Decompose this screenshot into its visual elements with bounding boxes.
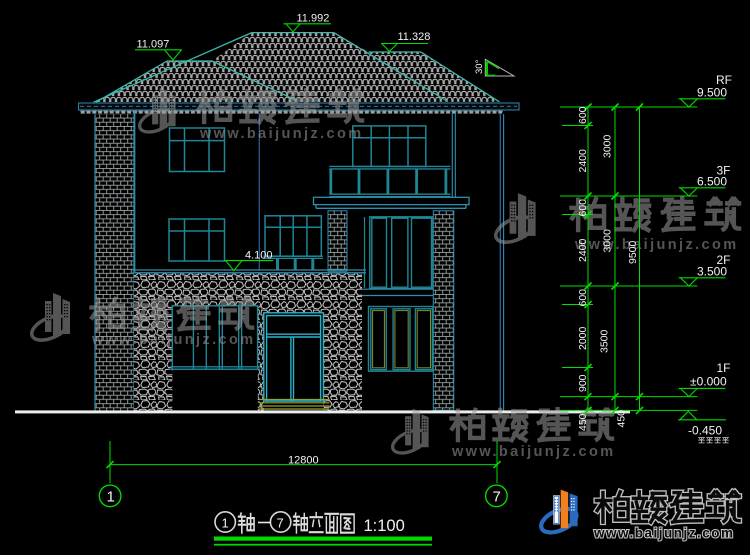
svg-text:2400: 2400	[577, 149, 589, 173]
svg-text:600: 600	[577, 199, 589, 217]
svg-text:1: 1	[107, 489, 115, 506]
svg-text:1: 1	[222, 516, 229, 531]
svg-text:30°: 30°	[474, 59, 485, 74]
svg-text:±0.000: ±0.000	[690, 375, 727, 389]
svg-text:9500: 9500	[627, 240, 639, 264]
svg-text:12800: 12800	[288, 455, 319, 467]
svg-text:900: 900	[577, 374, 589, 392]
svg-text:www.baijunjz.com: www.baijunjz.com	[199, 126, 364, 142]
svg-text:www.baijunjz.com: www.baijunjz.com	[91, 332, 256, 348]
svg-text:3500: 3500	[599, 329, 611, 353]
svg-text:3000: 3000	[602, 134, 614, 158]
svg-text:3.500: 3.500	[697, 265, 727, 279]
svg-text:7: 7	[277, 516, 284, 531]
svg-text:11.992: 11.992	[297, 13, 330, 25]
svg-text:2000: 2000	[577, 326, 589, 350]
svg-text:600: 600	[577, 106, 589, 124]
svg-text:600: 600	[577, 289, 589, 307]
svg-text:1F: 1F	[717, 361, 731, 375]
svg-text:4.100: 4.100	[245, 250, 273, 262]
svg-text:11.097: 11.097	[137, 39, 170, 51]
svg-text:6.500: 6.500	[697, 175, 727, 189]
svg-text:450: 450	[577, 413, 589, 431]
svg-text:-0.450: -0.450	[688, 424, 722, 438]
svg-text:2400: 2400	[577, 238, 589, 262]
svg-text:450: 450	[616, 410, 628, 428]
svg-text:www.baijunjz.com: www.baijunjz.com	[451, 444, 616, 460]
svg-text:11.328: 11.328	[398, 31, 431, 43]
svg-text:9.500: 9.500	[697, 86, 727, 100]
svg-text:7: 7	[493, 489, 501, 506]
svg-text:www.baijunjz.com: www.baijunjz.com	[593, 526, 735, 541]
svg-text:www.baijunjz.com: www.baijunjz.com	[574, 237, 739, 253]
svg-text:1:100: 1:100	[364, 517, 405, 535]
svg-text:3000: 3000	[602, 229, 614, 253]
